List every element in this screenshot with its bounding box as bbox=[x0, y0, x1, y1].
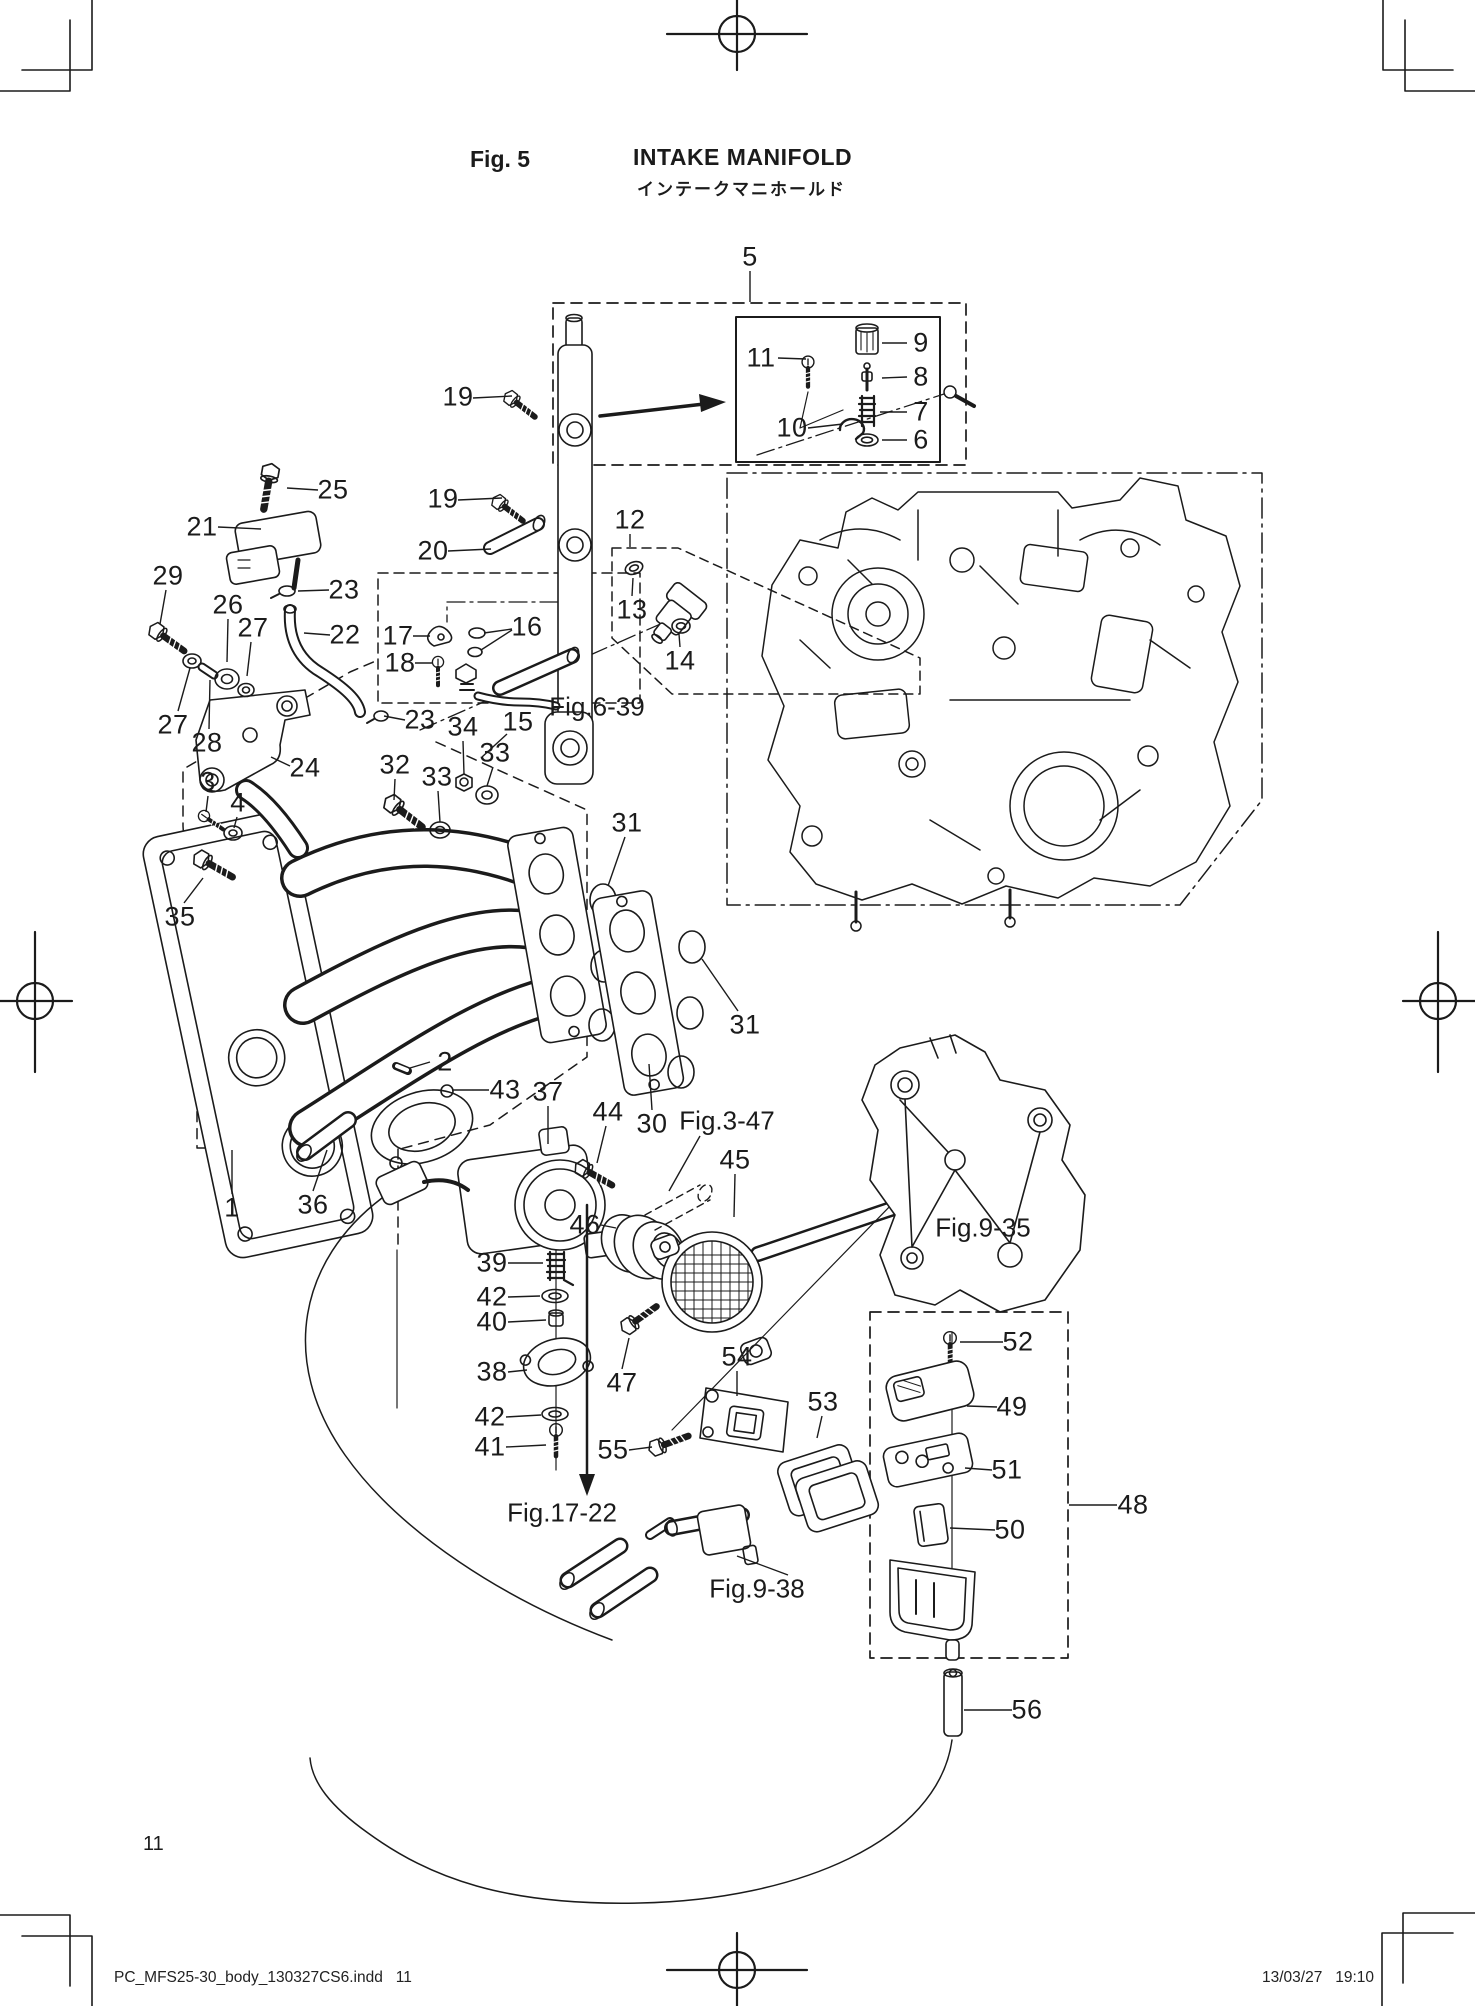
part-callout-21: 21 bbox=[186, 512, 217, 543]
part-callout-46: 46 bbox=[569, 1210, 600, 1241]
part-callout-49: 49 bbox=[996, 1392, 1027, 1423]
part-callout-15: 15 bbox=[502, 707, 533, 738]
page-number: 11 bbox=[143, 1833, 164, 1856]
part-callout-41: 41 bbox=[474, 1432, 505, 1463]
part-callout-31: 31 bbox=[611, 808, 642, 839]
part-callout-33: 33 bbox=[421, 762, 452, 793]
part-callout-34: 34 bbox=[447, 712, 478, 743]
part-callout-32: 32 bbox=[379, 750, 410, 781]
part-callout-14: 14 bbox=[664, 646, 695, 677]
part-callout-47: 47 bbox=[606, 1368, 637, 1399]
part-callout-3: 3 bbox=[200, 767, 216, 798]
part-callout-2: 2 bbox=[437, 1047, 453, 1078]
part-callout-10: 10 bbox=[776, 413, 807, 444]
part-callout-25: 25 bbox=[317, 475, 348, 506]
part-callout-43: 43 bbox=[489, 1075, 520, 1106]
footer-datetime: 13/03/27 19:10 bbox=[1262, 1969, 1374, 1987]
part-callout-53: 53 bbox=[807, 1387, 838, 1418]
part-callout-27: 27 bbox=[157, 710, 188, 741]
figure-number: Fig. 5 bbox=[470, 146, 530, 173]
part-callout-20: 20 bbox=[417, 536, 448, 567]
page-title-japanese: インテークマニホールド bbox=[637, 175, 846, 200]
part-callout-42: 42 bbox=[474, 1402, 505, 1433]
figure-reference-Fig-6-39: Fig.6-39 bbox=[549, 692, 644, 723]
labels-layer: Fig. 5 INTAKE MANIFOLD インテークマニホールド 11 PC… bbox=[0, 0, 1475, 2006]
part-callout-22: 22 bbox=[329, 620, 360, 651]
part-callout-35: 35 bbox=[164, 902, 195, 933]
part-callout-16: 16 bbox=[511, 612, 542, 643]
part-callout-27: 27 bbox=[237, 613, 268, 644]
part-callout-50: 50 bbox=[994, 1515, 1025, 1546]
part-callout-23: 23 bbox=[404, 705, 435, 736]
figure-reference-Fig-17-22: Fig.17-22 bbox=[507, 1498, 617, 1529]
part-callout-39: 39 bbox=[476, 1248, 507, 1279]
part-callout-9: 9 bbox=[913, 328, 929, 359]
part-callout-13: 13 bbox=[616, 595, 647, 626]
part-callout-48: 48 bbox=[1117, 1490, 1148, 1521]
part-callout-37: 37 bbox=[532, 1077, 563, 1108]
part-callout-7: 7 bbox=[913, 397, 929, 428]
part-callout-11: 11 bbox=[746, 343, 775, 374]
part-callout-23: 23 bbox=[328, 575, 359, 606]
part-callout-5: 5 bbox=[742, 242, 758, 273]
part-callout-44: 44 bbox=[592, 1097, 623, 1128]
figure-reference-Fig-3-47: Fig.3-47 bbox=[679, 1106, 774, 1137]
part-callout-38: 38 bbox=[476, 1357, 507, 1388]
footer-filename: PC_MFS25-30_body_130327CS6.indd 11 bbox=[114, 1969, 412, 1987]
page-title: INTAKE MANIFOLD bbox=[633, 144, 852, 171]
figure-reference-Fig-9-35: Fig.9-35 bbox=[935, 1213, 1030, 1244]
part-callout-33: 33 bbox=[479, 738, 510, 769]
part-callout-1: 1 bbox=[224, 1193, 240, 1224]
part-callout-40: 40 bbox=[476, 1307, 507, 1338]
part-callout-54: 54 bbox=[721, 1342, 752, 1373]
part-callout-52: 52 bbox=[1002, 1327, 1033, 1358]
part-callout-45: 45 bbox=[719, 1145, 750, 1176]
part-callout-28: 28 bbox=[191, 728, 222, 759]
part-callout-12: 12 bbox=[614, 505, 645, 536]
part-callout-56: 56 bbox=[1011, 1695, 1042, 1726]
part-callout-55: 55 bbox=[597, 1435, 628, 1466]
part-callout-24: 24 bbox=[289, 753, 320, 784]
part-callout-19: 19 bbox=[427, 484, 458, 515]
part-callout-4: 4 bbox=[230, 788, 246, 819]
figure-reference-Fig-9-38: Fig.9-38 bbox=[709, 1574, 804, 1605]
part-callout-6: 6 bbox=[913, 425, 929, 456]
part-callout-30: 30 bbox=[636, 1109, 667, 1140]
part-callout-19: 19 bbox=[442, 382, 473, 413]
part-callout-8: 8 bbox=[913, 362, 929, 393]
part-callout-51: 51 bbox=[991, 1455, 1022, 1486]
part-callout-36: 36 bbox=[297, 1190, 328, 1221]
part-callout-31: 31 bbox=[729, 1010, 760, 1041]
manual-page: Fig. 5 INTAKE MANIFOLD インテークマニホールド 11 PC… bbox=[0, 0, 1475, 2006]
part-callout-29: 29 bbox=[152, 561, 183, 592]
part-callout-18: 18 bbox=[384, 648, 415, 679]
